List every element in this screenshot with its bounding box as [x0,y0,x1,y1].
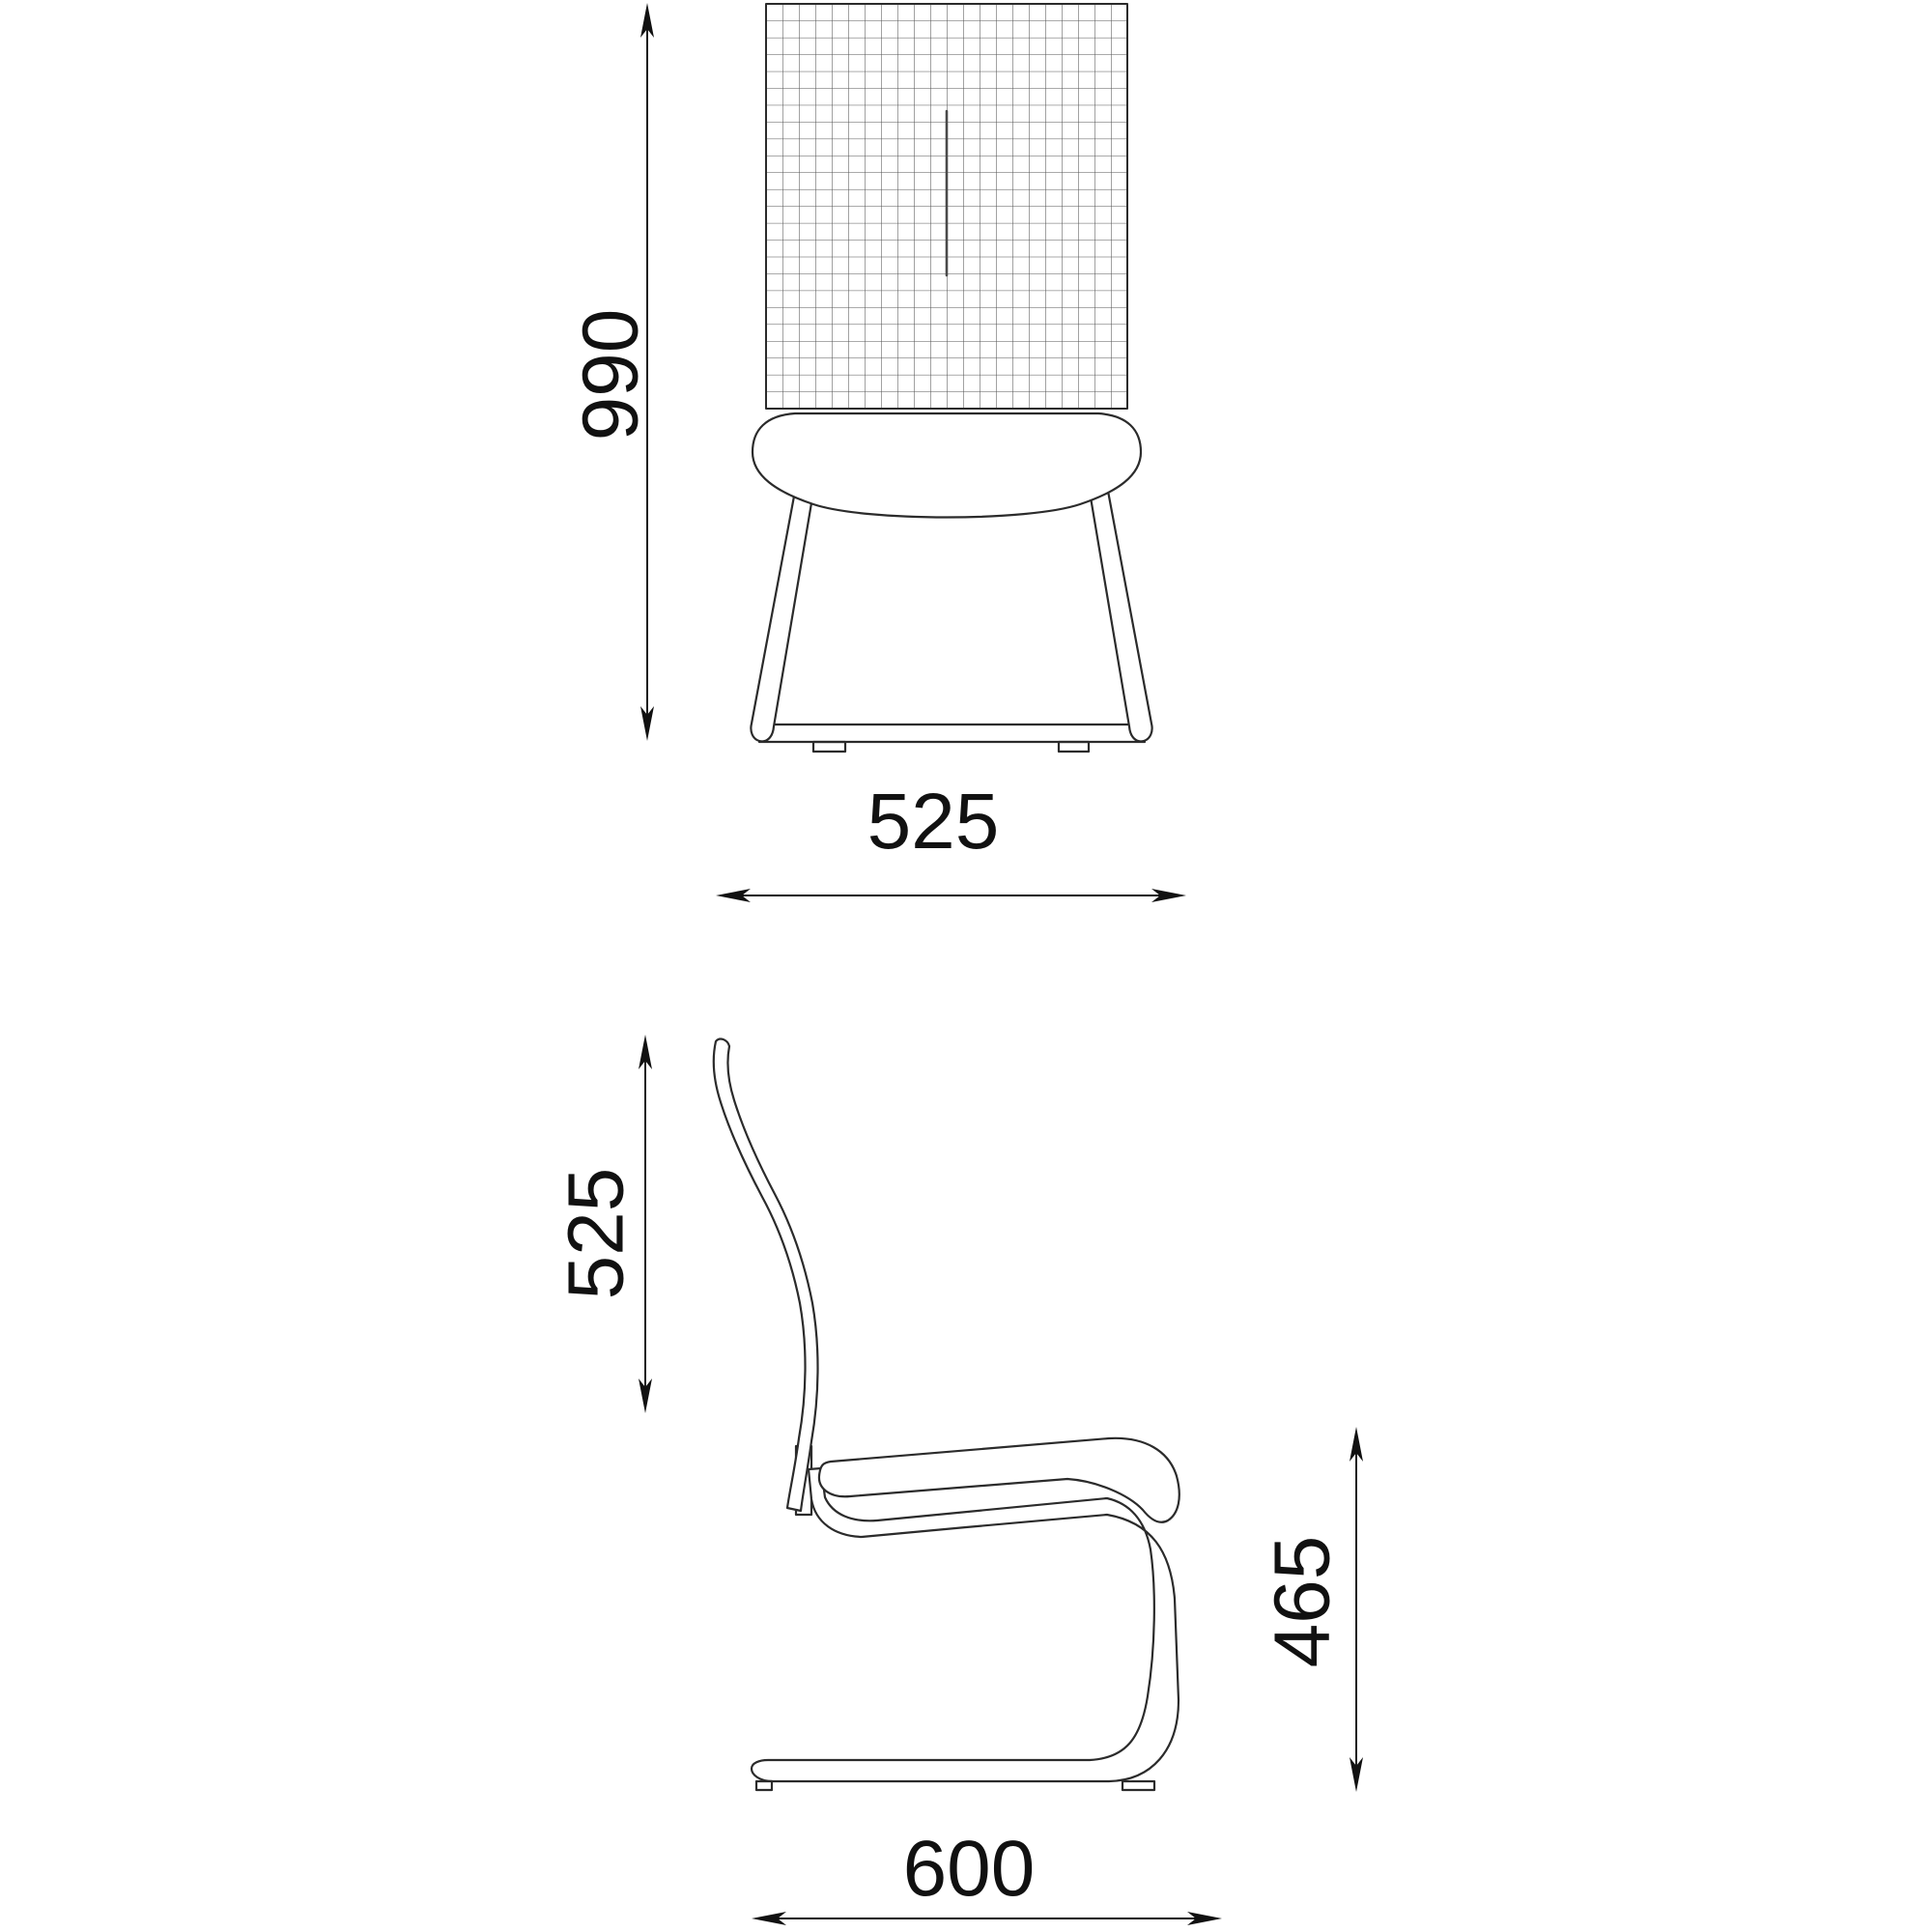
dimension-label-990: 990 [567,309,655,441]
technical-drawing-canvas: 990 525 525 [0,0,1932,1932]
dimension-height-990: 990 [567,3,655,741]
front-left-leg [751,486,814,741]
front-right-foot-glide [1059,742,1089,752]
dimension-depth-600: 600 [752,1825,1222,1925]
dimension-label-600: 600 [903,1825,1036,1913]
side-cantilever-frame [752,1468,1179,1781]
side-backrest [714,1039,818,1511]
front-seat [753,413,1141,518]
dimension-width-525: 525 [716,778,1186,902]
page: 990 525 525 [0,0,1932,1932]
dimension-label-525-back: 525 [553,1168,640,1300]
dimension-seat-height-465: 465 [1259,1427,1364,1792]
front-left-foot-glide [813,742,845,752]
front-right-leg [1089,486,1152,741]
side-view-drawing [714,1039,1179,1790]
front-view-drawing [751,4,1151,752]
dimension-label-465: 465 [1259,1536,1347,1668]
dimension-label-525-width: 525 [867,778,1000,866]
side-front-foot-glide [1122,1781,1154,1790]
side-rear-foot-glide [756,1781,772,1790]
dimension-back-height-525: 525 [553,1035,653,1413]
